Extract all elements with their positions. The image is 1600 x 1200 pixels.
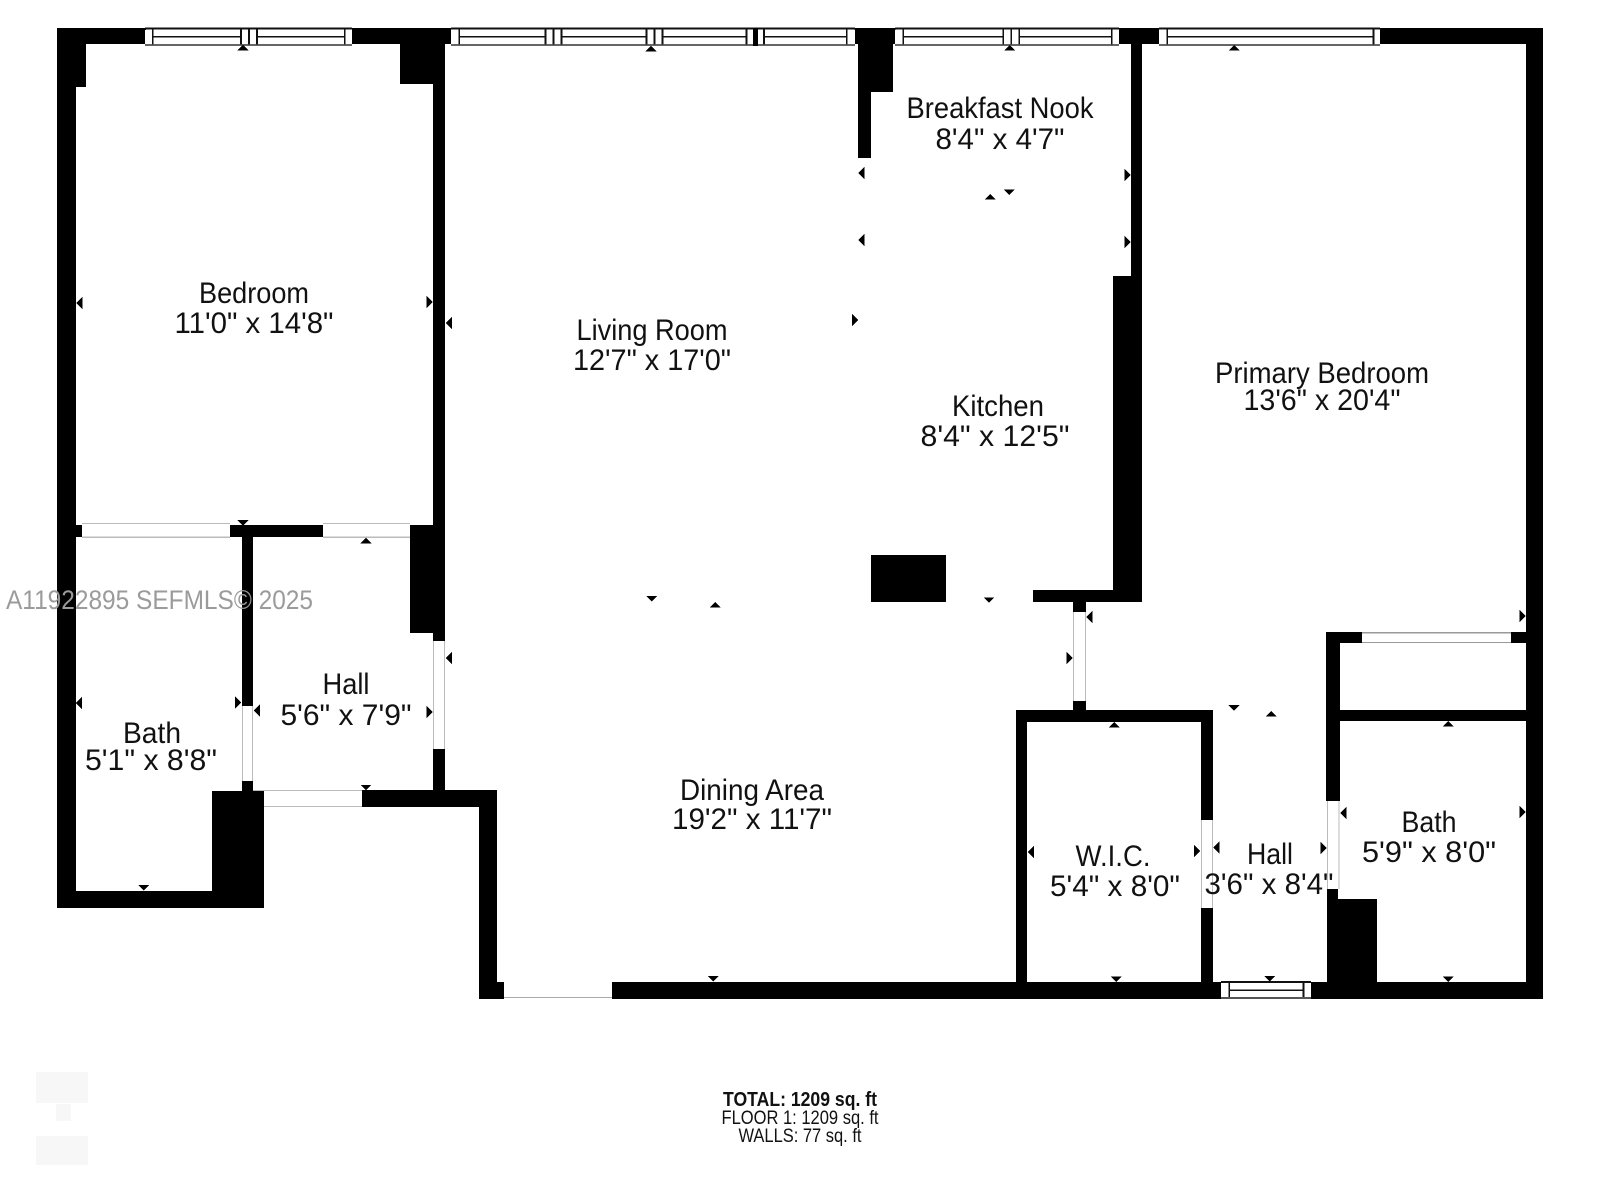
svg-text:3'6" x 8'4": 3'6" x 8'4" xyxy=(1205,868,1334,901)
svg-text:Kitchen: Kitchen xyxy=(952,390,1044,423)
svg-text:Breakfast Nook: Breakfast Nook xyxy=(907,92,1095,125)
svg-text:Hall: Hall xyxy=(323,668,370,701)
svg-text:8'4" x 12'5": 8'4" x 12'5" xyxy=(921,420,1070,453)
svg-text:8'4" x 4'7": 8'4" x 4'7" xyxy=(936,123,1065,156)
svg-text:5'9" x 8'0": 5'9" x 8'0" xyxy=(1362,836,1496,869)
svg-text:Hall: Hall xyxy=(1247,838,1293,871)
svg-text:A11922895 SEFMLS© 2025: A11922895 SEFMLS© 2025 xyxy=(6,585,313,615)
svg-text:Living Room: Living Room xyxy=(577,314,728,347)
svg-text:11'0" x 14'8": 11'0" x 14'8" xyxy=(175,307,334,340)
svg-text:Bedroom: Bedroom xyxy=(199,277,309,310)
svg-text:19'2" x 11'7": 19'2" x 11'7" xyxy=(672,803,832,836)
svg-text:5'4" x 8'0": 5'4" x 8'0" xyxy=(1050,870,1180,903)
svg-text:12'7" x 17'0": 12'7" x 17'0" xyxy=(573,344,731,377)
svg-text:13'6" x 20'4": 13'6" x 20'4" xyxy=(1244,384,1401,417)
svg-text:WALLS: 77 sq. ft: WALLS: 77 sq. ft xyxy=(739,1126,863,1147)
svg-text:W.I.C.: W.I.C. xyxy=(1076,840,1151,873)
svg-text:5'1" x 8'8": 5'1" x 8'8" xyxy=(85,744,217,777)
svg-text:5'6" x 7'9": 5'6" x 7'9" xyxy=(281,699,412,732)
svg-text:Bath: Bath xyxy=(1402,806,1457,839)
